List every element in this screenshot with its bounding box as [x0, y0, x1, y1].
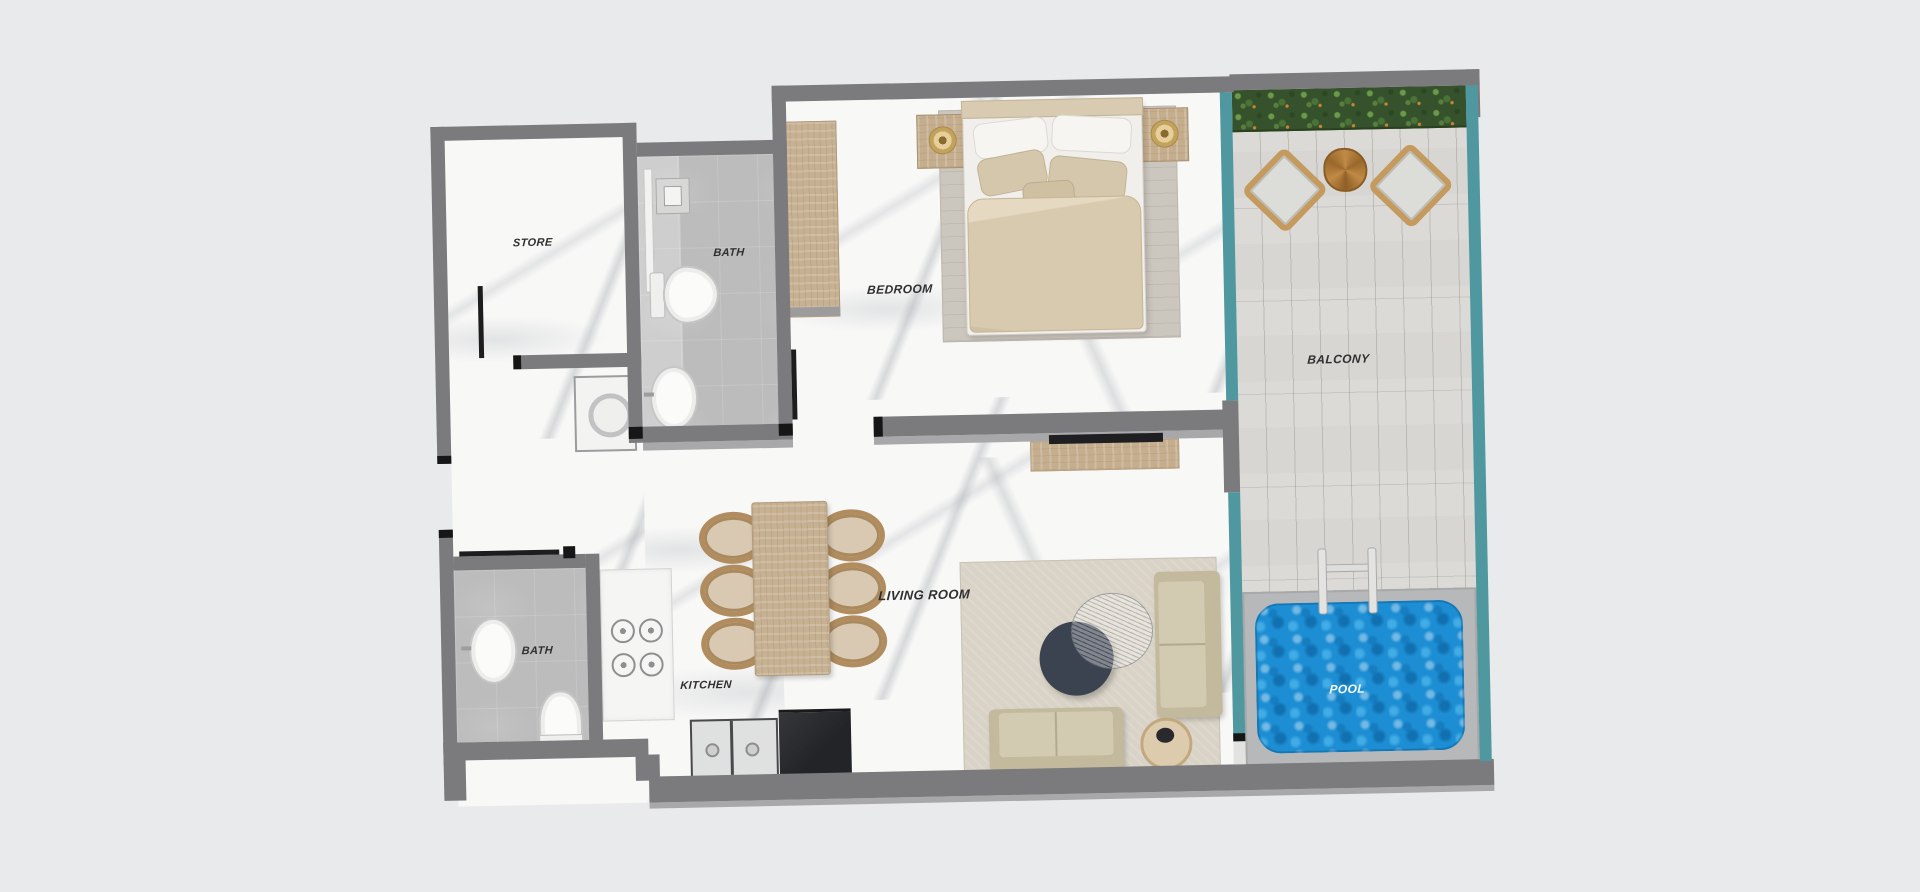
wardrobe [782, 121, 840, 318]
bed [962, 98, 1147, 336]
kitchen-sink-unit [690, 718, 779, 782]
pool-ladder-rail-right [1367, 547, 1377, 613]
entry-door-jamb-bottom [439, 530, 453, 538]
balcony-door-opening [1233, 741, 1245, 764]
wardrobe-base-shadow [786, 307, 840, 317]
living-room-label: LIVING ROOM [878, 586, 971, 603]
balcony-plants [1232, 85, 1467, 132]
floor-plan: STORE BATH BEDROOM BALCONY BATH KITCHEN … [429, 59, 1494, 823]
wall-corner-stub [443, 742, 466, 800]
balcony-table [1323, 147, 1368, 192]
bath-bottom-label: BATH [521, 645, 553, 658]
store-label: STORE [513, 237, 553, 250]
bedroom-door-jamb [873, 417, 882, 437]
pool-ladder-rail-left [1317, 548, 1327, 614]
bath-right-jamb [779, 424, 793, 436]
pool-ladder-crossbar [1324, 563, 1372, 572]
floor-plan-canvas: STORE BATH BEDROOM BALCONY BATH KITCHEN … [0, 0, 1920, 892]
wall-store-bottom [521, 353, 641, 370]
store-door-jamb [513, 355, 521, 369]
shower-head-square [664, 186, 682, 206]
dining-table [751, 501, 831, 677]
bath-bottom-door-jamb [563, 546, 575, 558]
wall-glass-mid-segment [1222, 400, 1240, 492]
entry-door-jamb-top [437, 456, 451, 464]
balcony-label: BALCONY [1307, 351, 1370, 366]
bed-headboard [961, 97, 1143, 119]
bath-top-label: BATH [713, 247, 745, 260]
sink-bottom-tap [461, 646, 471, 650]
wall-bath-top-bottom [629, 424, 793, 443]
bed-pillow-white-2 [1051, 114, 1133, 154]
balcony-door-jamb [1233, 733, 1245, 741]
kitchen-appliance-black [779, 708, 852, 778]
pool-water [1254, 600, 1465, 754]
pool-label: POOL [1329, 682, 1365, 697]
kitchen-label: KITCHEN [680, 679, 732, 692]
sink-top-tap [644, 392, 654, 396]
bed-duvet [967, 195, 1144, 333]
kitchen-counter [600, 568, 675, 721]
divider-jamb [629, 427, 643, 439]
bedroom-label: BEDROOM [867, 282, 933, 297]
